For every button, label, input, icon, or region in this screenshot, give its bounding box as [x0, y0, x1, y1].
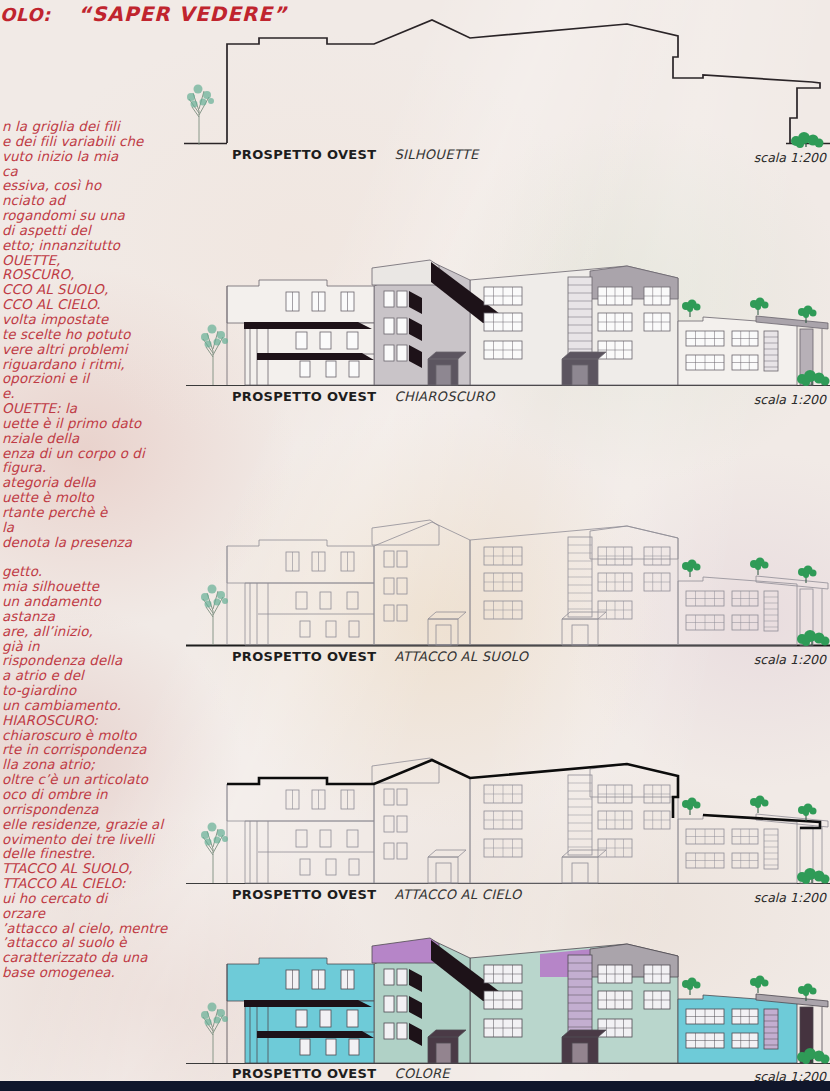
caption-name: PROSPETTO OVEST — [232, 649, 376, 664]
caption-variant: ATTACCO AL CIELO — [395, 887, 522, 902]
drawing-chiaroscuro — [180, 247, 830, 393]
caption-chiaroscuro: PROSPETTO OVEST CHIAROSCURO scala 1:200 — [180, 389, 830, 407]
caption-variant: CHIAROSCURO — [395, 389, 495, 404]
drawing-colore — [180, 925, 830, 1071]
commentary-text: n la griglia dei fili e dei fili variabi… — [2, 120, 180, 981]
caption-name: PROSPETTO OVEST — [232, 887, 376, 902]
caption-attacco-al-cielo: PROSPETTO OVEST ATTACCO AL CIELO scala 1… — [180, 887, 830, 905]
caption-variant: COLORE — [395, 1066, 450, 1081]
caption-silhouette: PROSPETTO OVEST SILHOUETTE scala 1:200 — [180, 147, 830, 165]
poster-photo: { "title": { "prefix": "OLO:", "main": "… — [0, 0, 830, 1091]
scale-label: scala 1:200 — [754, 652, 826, 667]
scale-label: scala 1:200 — [754, 392, 826, 407]
caption-variant: ATTACCO AL SUOLO — [395, 649, 529, 664]
drawing-attacco-al-cielo — [180, 745, 830, 891]
caption-name: PROSPETTO OVEST — [232, 147, 376, 162]
drawing-silhouette — [180, 5, 830, 151]
caption-name: PROSPETTO OVEST — [232, 389, 376, 404]
caption-variant: SILHOUETTE — [395, 147, 479, 162]
poster-title-prefix: OLO: — [0, 4, 51, 25]
caption-attacco-al-suolo: PROSPETTO OVEST ATTACCO AL SUOLO scala 1… — [180, 649, 830, 667]
scale-label: scala 1:200 — [754, 890, 826, 905]
scale-label: scala 1:200 — [754, 150, 826, 165]
bottom-edge-strip — [0, 1081, 830, 1091]
caption-name: PROSPETTO OVEST — [232, 1066, 376, 1081]
drawing-attacco-al-suolo — [180, 507, 830, 653]
